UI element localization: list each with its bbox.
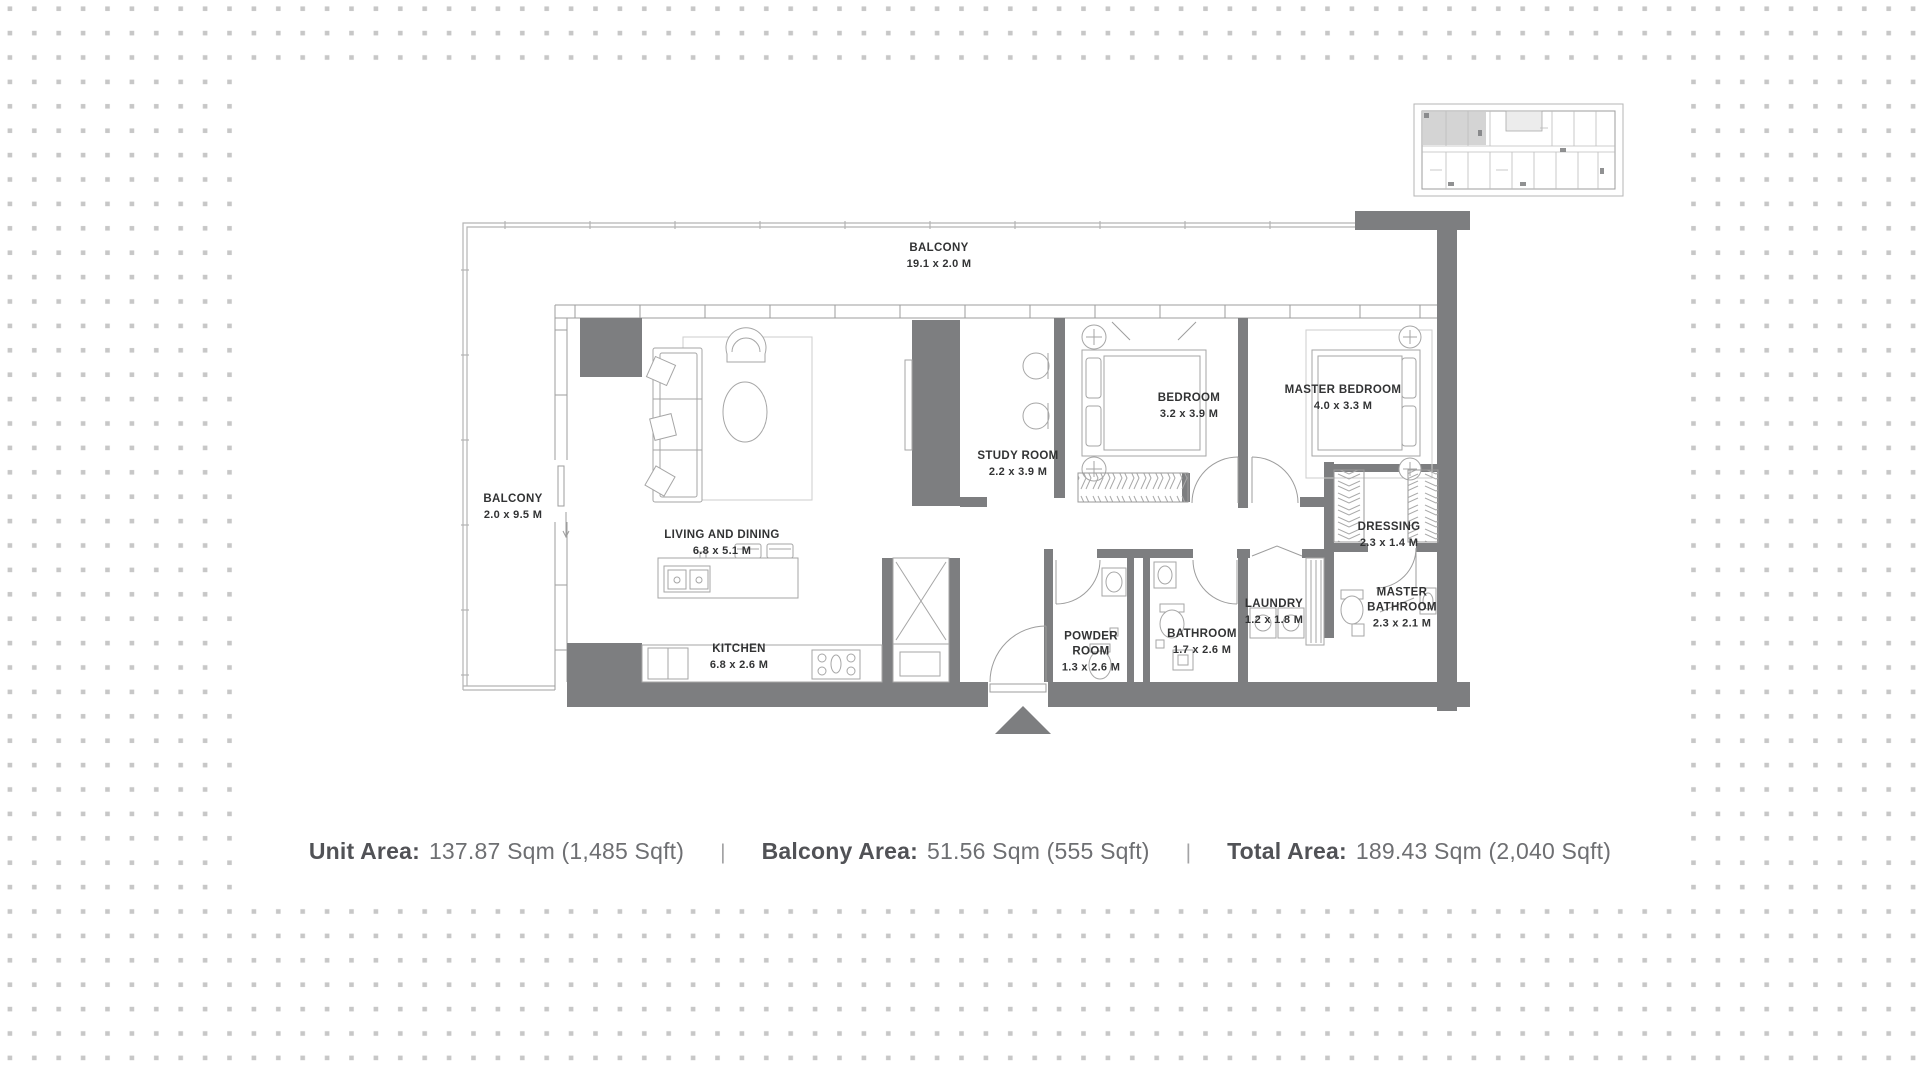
- room-name: LAUNDRY: [1219, 597, 1329, 612]
- stats-separator: |: [720, 841, 725, 865]
- area-statistics-bar: Unit Area: 137.87 Sqm (1,485 Sqft) | Bal…: [0, 838, 1920, 865]
- key-plan-highlighted-unit: [1422, 111, 1486, 145]
- room-label-balcony-top: BALCONY 19.1 x 2.0 M: [874, 241, 1004, 271]
- total-area-value: 189.43 Sqm (2,040 Sqft): [1356, 838, 1611, 865]
- room-label-kitchen: KITCHEN 6.8 x 2.6 M: [674, 642, 804, 672]
- room-label-bedroom: BEDROOM 3.2 x 3.9 M: [1129, 391, 1249, 421]
- room-dims: 4.0 x 3.3 M: [1248, 399, 1438, 413]
- room-dims: 1.7 x 2.6 M: [1137, 643, 1267, 657]
- room-label-master-bathroom: MASTER BATHROOM 2.3 x 2.1 M: [1358, 585, 1446, 630]
- key-plan: [1414, 104, 1623, 196]
- room-dims: 2.3 x 1.4 M: [1334, 536, 1444, 550]
- balcony-area-label: Balcony Area:: [762, 838, 918, 865]
- room-dims: 6.8 x 5.1 M: [617, 544, 827, 558]
- room-label-master-bedroom: MASTER BEDROOM 4.0 x 3.3 M: [1248, 383, 1438, 413]
- room-dims: 6.8 x 2.6 M: [674, 658, 804, 672]
- room-label-study-room: STUDY ROOM 2.2 x 3.9 M: [958, 449, 1078, 479]
- stats-separator: |: [1186, 841, 1191, 865]
- room-name: BATHROOM: [1137, 627, 1267, 642]
- unit-area-value: 137.87 Sqm (1,485 Sqft): [429, 838, 684, 865]
- room-label-balcony-left: BALCONY 2.0 x 9.5 M: [453, 492, 573, 522]
- balcony-area-value: 51.56 Sqm (555 Sqft): [927, 838, 1150, 865]
- floor-plan-canvas: [0, 0, 1920, 1078]
- room-name: LIVING AND DINING: [617, 528, 827, 543]
- room-name: DRESSING: [1334, 520, 1444, 535]
- room-name: MASTER BEDROOM: [1248, 383, 1438, 398]
- room-name: KITCHEN: [674, 642, 804, 657]
- room-label-bathroom: BATHROOM 1.7 x 2.6 M: [1137, 627, 1267, 657]
- room-label-living-dining: LIVING AND DINING 6.8 x 5.1 M: [617, 528, 827, 558]
- room-name: MASTER BATHROOM: [1358, 585, 1446, 615]
- room-name: STUDY ROOM: [958, 449, 1078, 464]
- room-name: BALCONY: [453, 492, 573, 507]
- floor-plan-page: BALCONY 19.1 x 2.0 M BALCONY 2.0 x 9.5 M…: [0, 0, 1920, 1078]
- room-dims: 2.3 x 2.1 M: [1358, 616, 1446, 630]
- unit-area-label: Unit Area:: [309, 838, 420, 865]
- room-dims: 1.2 x 1.8 M: [1219, 613, 1329, 627]
- total-area-label: Total Area:: [1227, 838, 1347, 865]
- room-name: POWDER ROOM: [1057, 629, 1125, 659]
- room-label-laundry: LAUNDRY 1.2 x 1.8 M: [1219, 597, 1329, 627]
- room-dims: 2.2 x 3.9 M: [958, 465, 1078, 479]
- room-label-powder-room: POWDER ROOM 1.3 x 2.6 M: [1057, 629, 1125, 674]
- room-name: BALCONY: [874, 241, 1004, 256]
- room-name: BEDROOM: [1129, 391, 1249, 406]
- room-dims: 19.1 x 2.0 M: [874, 257, 1004, 271]
- room-dims: 3.2 x 3.9 M: [1129, 407, 1249, 421]
- room-dims: 1.3 x 2.6 M: [1057, 660, 1125, 674]
- room-label-dressing: DRESSING 2.3 x 1.4 M: [1334, 520, 1444, 550]
- room-dims: 2.0 x 9.5 M: [453, 508, 573, 522]
